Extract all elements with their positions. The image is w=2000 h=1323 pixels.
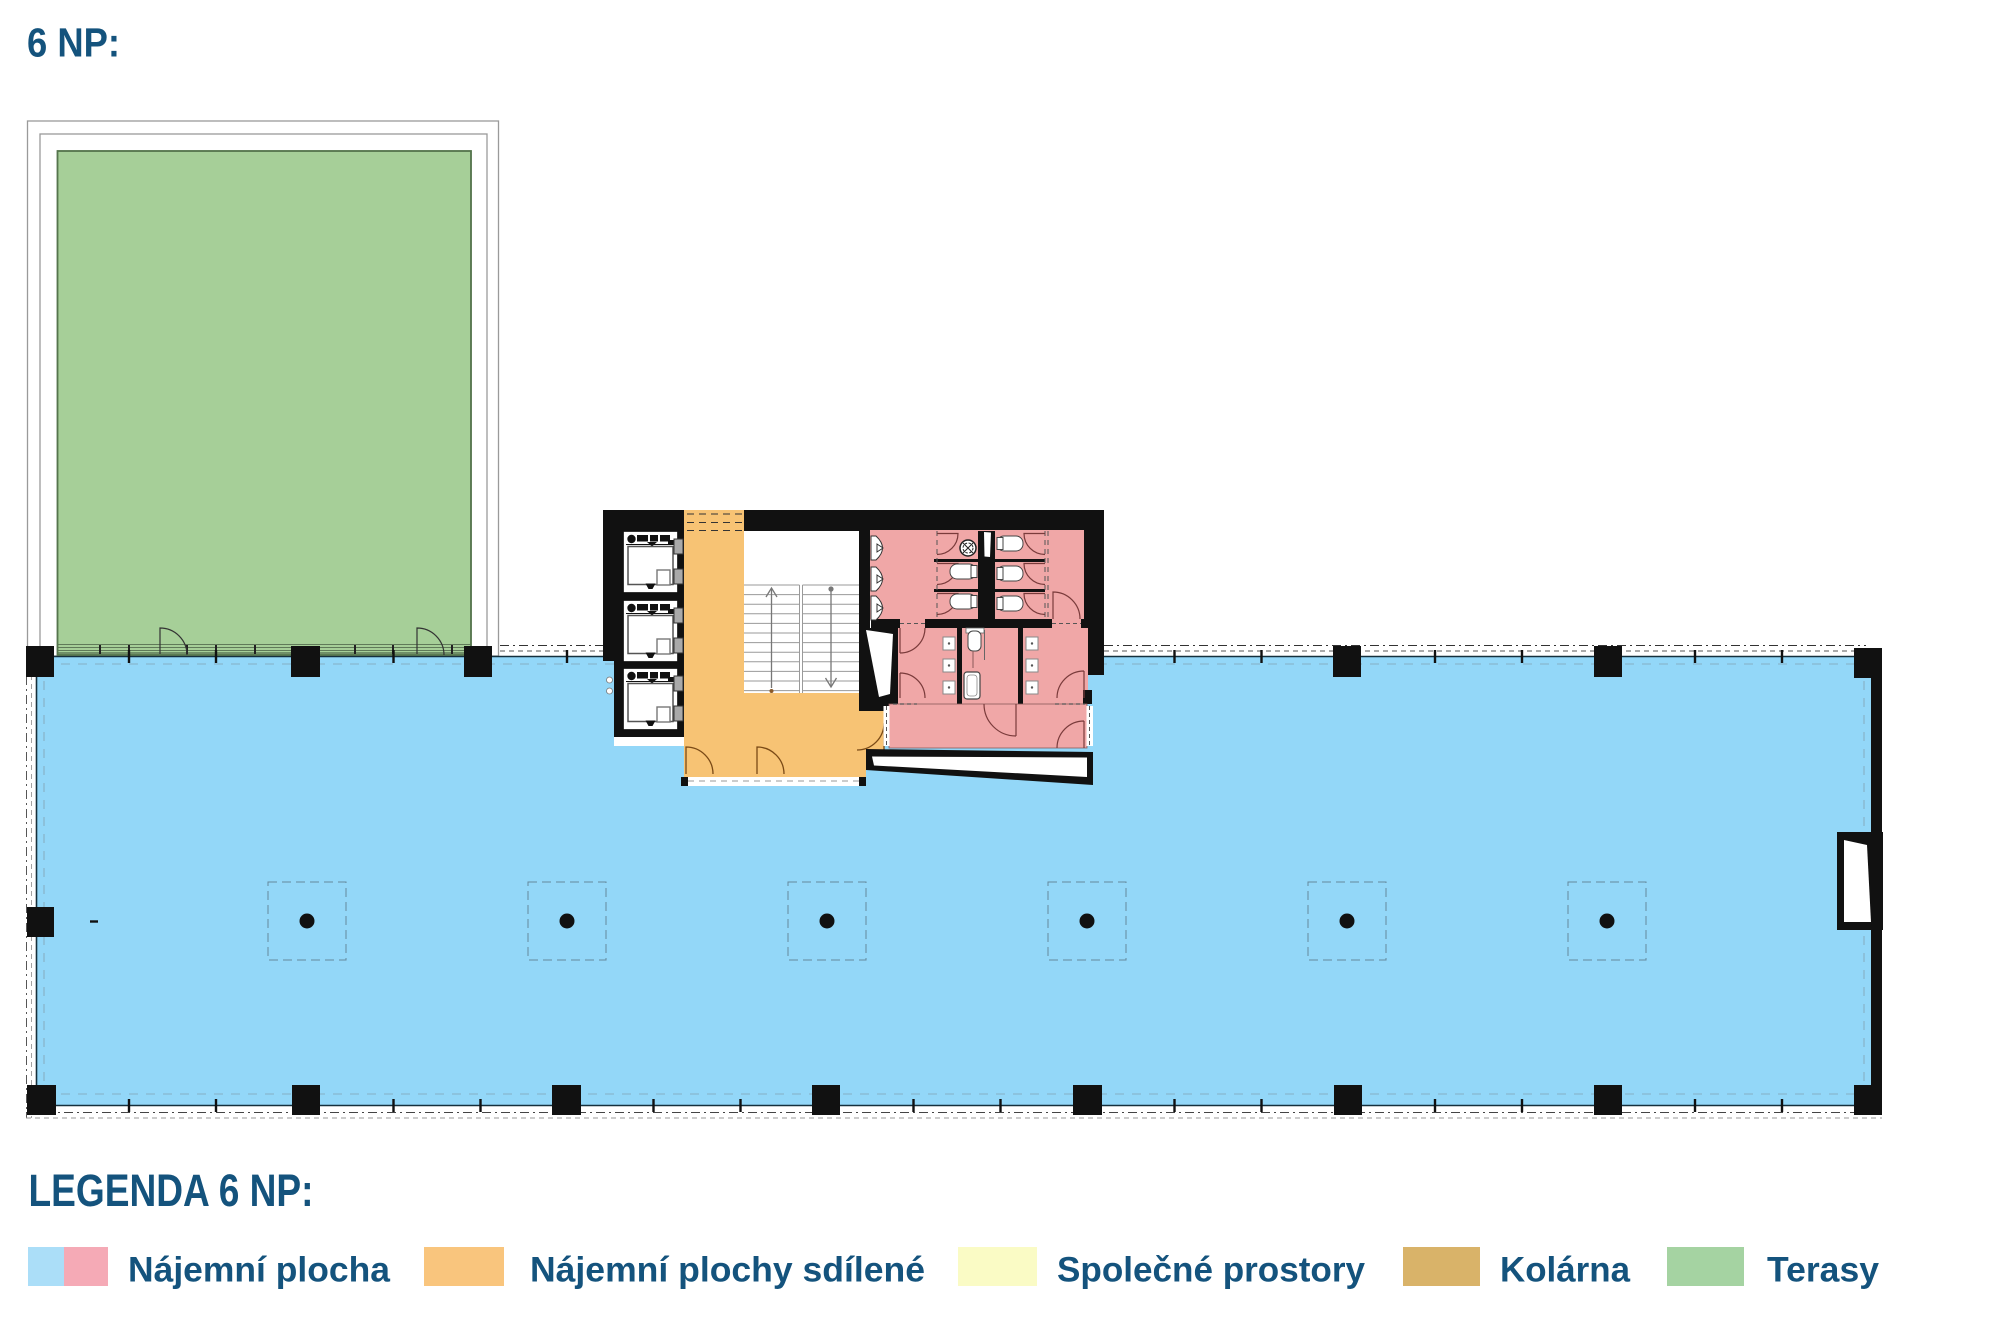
svg-text:Nájemní plocha: Nájemní plocha xyxy=(128,1251,391,1290)
svg-text:Kolárna: Kolárna xyxy=(1500,1251,1631,1290)
svg-text:LEGENDA 6 NP:: LEGENDA 6 NP: xyxy=(29,1165,314,1216)
svg-text:Terasy: Terasy xyxy=(1767,1251,1880,1290)
svg-text:6 NP:: 6 NP: xyxy=(27,20,120,66)
svg-text:Společné prostory: Společné prostory xyxy=(1057,1251,1366,1290)
svg-text:Nájemní plochy sdílené: Nájemní plochy sdílené xyxy=(530,1251,925,1290)
